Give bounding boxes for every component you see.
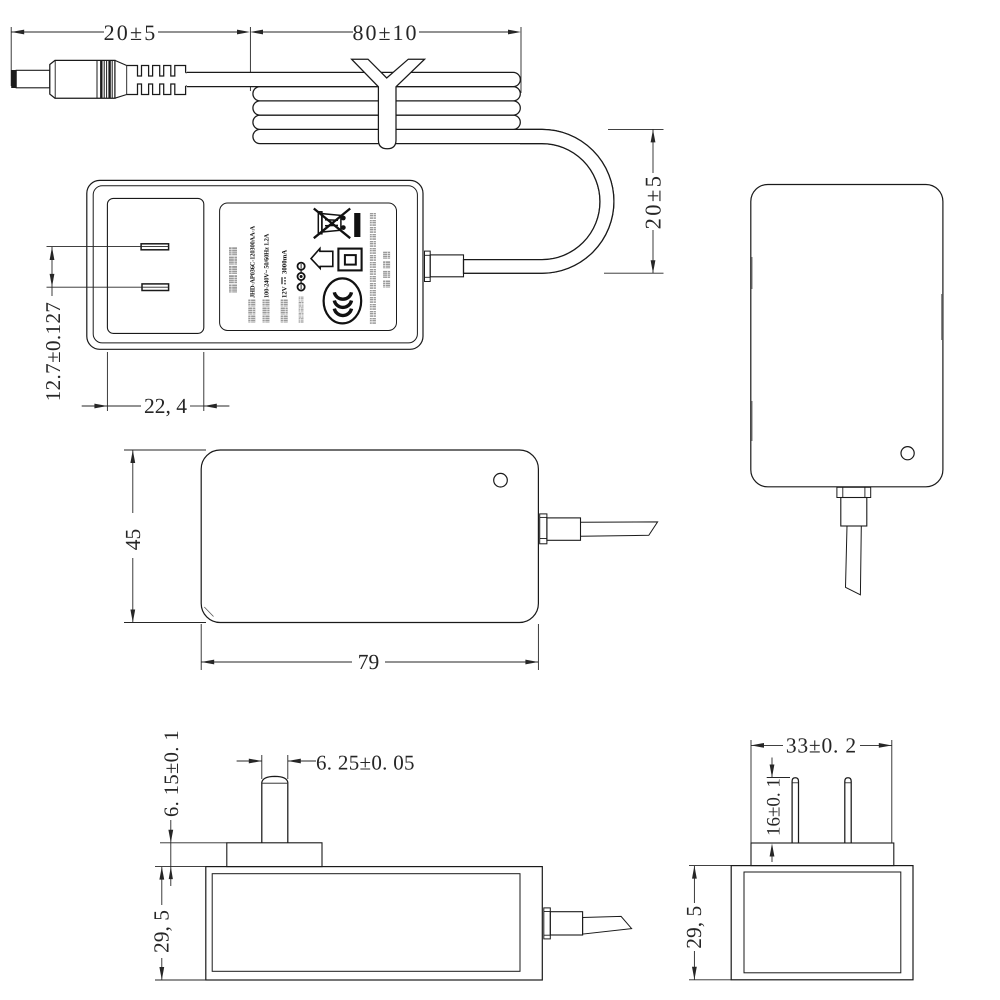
svg-text:80±10: 80±10 bbox=[352, 20, 418, 45]
svg-text:22, 4: 22, 4 bbox=[144, 394, 187, 418]
svg-text:100-240V~ 50/60Hz 1.2A: 100-240V~ 50/60Hz 1.2A bbox=[264, 233, 271, 298]
svg-text:6. 25±0. 05: 6. 25±0. 05 bbox=[316, 750, 415, 774]
svg-text:29, 5: 29, 5 bbox=[682, 906, 706, 949]
svg-text:20±5: 20±5 bbox=[104, 20, 158, 45]
svg-text:20±5: 20±5 bbox=[641, 174, 666, 230]
svg-text:29, 5: 29, 5 bbox=[150, 910, 174, 953]
svg-text:3000mA: 3000mA bbox=[282, 250, 289, 274]
svg-text:79: 79 bbox=[358, 650, 380, 674]
svg-text:16±0. 1: 16±0. 1 bbox=[764, 778, 785, 836]
svg-text:6. 15±0. 1: 6. 15±0. 1 bbox=[161, 730, 183, 817]
svg-text:JHD-AP036C-120300AA-A: JHD-AP036C-120300AA-A bbox=[249, 226, 256, 298]
svg-text:33±0. 2: 33±0. 2 bbox=[786, 734, 857, 758]
svg-text:12V: 12V bbox=[282, 286, 289, 298]
svg-text:45: 45 bbox=[121, 529, 145, 551]
svg-text:12.7±0.127: 12.7±0.127 bbox=[41, 302, 65, 402]
